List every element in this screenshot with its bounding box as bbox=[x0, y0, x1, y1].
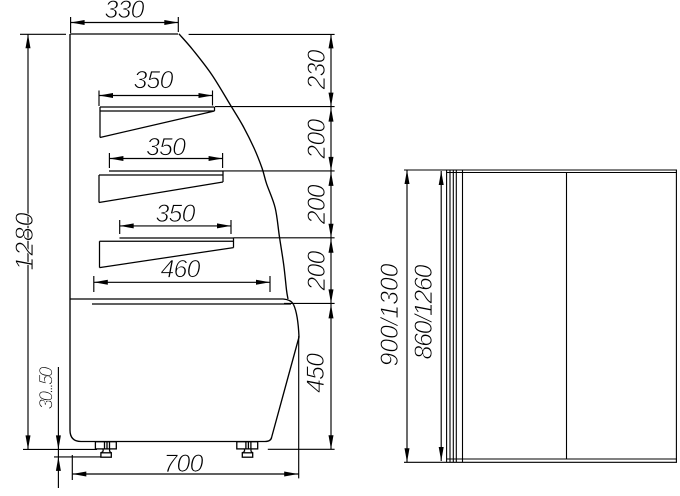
svg-text:200: 200 bbox=[303, 251, 331, 292]
svg-text:330: 330 bbox=[105, 0, 145, 24]
svg-text:200: 200 bbox=[303, 119, 331, 160]
svg-text:350: 350 bbox=[146, 134, 186, 162]
svg-text:1280: 1280 bbox=[11, 212, 39, 270]
svg-text:700: 700 bbox=[164, 450, 204, 478]
svg-text:900/1300: 900/1300 bbox=[376, 263, 404, 366]
svg-text:450: 450 bbox=[302, 353, 330, 393]
svg-text:350: 350 bbox=[134, 67, 174, 95]
svg-text:230: 230 bbox=[303, 49, 331, 90]
svg-text:200: 200 bbox=[303, 184, 331, 225]
svg-text:860/1260: 860/1260 bbox=[410, 264, 438, 359]
svg-text:350: 350 bbox=[156, 200, 196, 228]
svg-text:460: 460 bbox=[161, 256, 201, 284]
svg-text:30...50: 30...50 bbox=[37, 366, 58, 409]
